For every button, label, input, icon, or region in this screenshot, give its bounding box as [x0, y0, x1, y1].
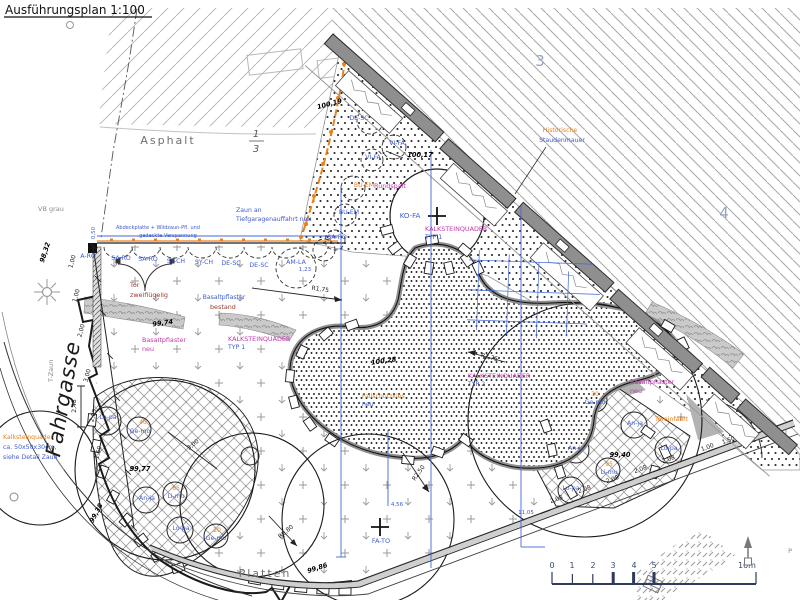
plant-label: An-ja: [139, 495, 155, 502]
note-rundspalt: Rundspalt: [374, 182, 406, 190]
note-abdeckung: Abdeckplatte + Wildzaun-Pfl. und: [116, 225, 200, 231]
dim-label: 0,50: [91, 226, 97, 239]
scale-tick-label: 1: [569, 561, 574, 570]
note-kalk-detail: ca. 50x50x30cm,: [3, 444, 57, 451]
note-basalt-neu: neu: [630, 387, 642, 395]
plant-label: Ge-mo: [130, 428, 151, 435]
note-kalk-detail: Kalksteinquader: [3, 434, 54, 441]
note-fallschutz: Fallschutzkies: [362, 393, 405, 400]
note-mauer: Historische: [543, 127, 578, 134]
parcel-number: 4: [719, 204, 729, 222]
note-basalt-neu: neu: [142, 345, 154, 353]
elevation-label: 99,77: [130, 465, 151, 473]
dim-label: 1,23: [299, 267, 312, 273]
plant-label: VI-FA: [365, 154, 381, 161]
plant-label: DE-SC: [349, 115, 368, 122]
plant-label: BU-EM: [339, 209, 359, 216]
plan-title: Ausführungsplan 1:100: [5, 3, 145, 17]
plant-label: AM-LA: [286, 259, 306, 266]
scale-tick-label: 0: [549, 561, 554, 570]
scale-tick-label: 5: [651, 561, 656, 570]
note-basalt-bestand: bestand: [210, 303, 236, 311]
plant-label: BU-EM: [354, 182, 374, 189]
plant-label: SA-RO: [327, 234, 347, 241]
dim-label: 2,48: [71, 399, 78, 413]
plant-label: An-ja: [568, 445, 584, 452]
note-kalk-detail: siehe Detail Zaun: [3, 454, 58, 461]
material-typ: TYP 2: [467, 381, 485, 388]
material-kalk: KALKSTEINQUADER: [468, 372, 531, 380]
scale-tick-label: 2: [590, 561, 595, 570]
asphalt-label: Asphalt: [140, 134, 195, 147]
note-zaun: Tiefgaragenauffahrt neu: [235, 216, 311, 223]
material-typ: TYP 1: [424, 234, 442, 241]
note-tor: zweiflügelig: [130, 291, 168, 299]
plant-label: SA-RO: [138, 256, 158, 263]
note-tor: Tor: [129, 281, 140, 289]
plant-qty: 20: [213, 527, 221, 534]
dim-label: 11,05: [518, 510, 534, 516]
scale-tick-label: 4: [631, 561, 636, 570]
plant-label: Lo-pa: [172, 525, 189, 532]
plant-label: VI-FA: [389, 140, 405, 147]
tree-label: KO-FA: [400, 212, 421, 220]
material-typ: TYP 1: [227, 344, 245, 351]
plant-label: Ge-mo: [206, 535, 227, 542]
plant-qty: 30: [591, 391, 599, 398]
plant-qty: 40: [139, 419, 147, 426]
plant-label: Li-mu: [167, 493, 184, 500]
plant-qty: 85: [172, 485, 180, 492]
edge-letter: P: [788, 547, 792, 555]
dim-label: 4,56: [391, 502, 404, 508]
note-zaun: Zaun an: [236, 207, 262, 214]
material-kalk: KALKSTEINQUADER: [425, 225, 488, 233]
plant-label: Lo-pa: [660, 445, 677, 452]
fraction-numerator: 1: [253, 129, 259, 140]
plant-label: SY-CH: [195, 259, 214, 266]
note-basalt-bestand: Basaltpflaster: [203, 294, 246, 301]
note-t-zaun: T-Zaun: [47, 360, 55, 383]
platten-label: Platten: [239, 567, 292, 580]
plant-label: An-ja: [627, 420, 643, 427]
tree-label: FA-TO: [372, 537, 390, 545]
plant-label: A-RO: [80, 253, 96, 260]
note-mauer: Staudenmauer: [539, 137, 585, 144]
plant-label: Lo-pa: [99, 414, 116, 421]
parcel-number: 3: [535, 52, 545, 70]
vb-grau-label: VB grau: [38, 205, 64, 213]
plant-label: DE-SC: [221, 260, 240, 267]
plant-qty: 95: [605, 461, 613, 468]
note-basalt-neu: Basaltpflaster: [630, 378, 675, 386]
note-fallschutz: neu: [362, 401, 374, 408]
note-abdeckung: gedeckte Verspannung: [139, 233, 197, 239]
elevation-label: 99,40: [610, 451, 631, 459]
note-toreinfahrt: Toreinfahrt: [654, 416, 689, 423]
plant-label: SY-CH: [167, 258, 186, 265]
fraction-denominator: 3: [253, 144, 259, 155]
plant-label: SA-RO: [111, 255, 131, 262]
scale-tick-label: 3: [610, 561, 615, 570]
plant-label: DE-SC: [249, 262, 268, 269]
elevation-label: 100,17: [407, 151, 433, 159]
material-kalk: KALKSTEINQUADER: [228, 335, 291, 343]
note-basalt-neu: Basaltpflaster: [142, 336, 187, 344]
plant-label: Ge-mo: [585, 399, 606, 406]
landscape-plan-canvas: 0 1 2 3 4 5 10m: [0, 0, 800, 600]
